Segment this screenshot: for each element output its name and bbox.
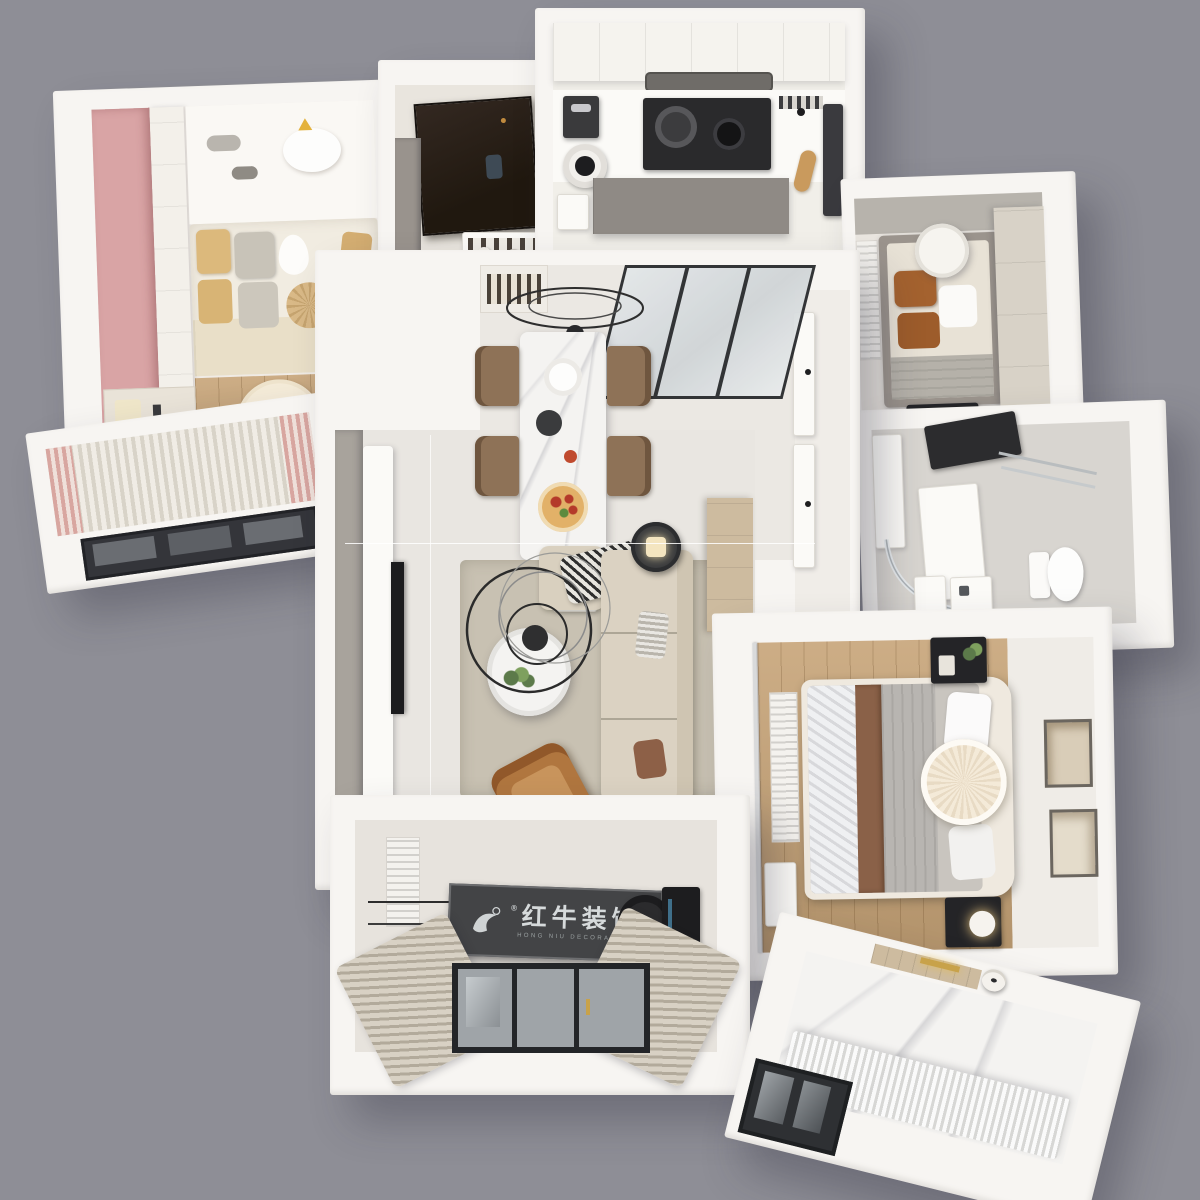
- kitchen-island: [593, 178, 789, 234]
- pot-large: [655, 106, 697, 148]
- mural-cloud-icon: [206, 135, 241, 152]
- door-peephole: [501, 118, 506, 123]
- coffee-machine: [563, 96, 599, 138]
- master-bed: [801, 676, 1015, 900]
- dinner-plate: [544, 358, 582, 396]
- range-hood: [647, 74, 771, 90]
- dining-table: [520, 332, 606, 560]
- apartment-3d-floorplan: ®红牛装饰 HONG NIU DECORATION: [0, 0, 1200, 1200]
- master-radiator: [769, 692, 800, 842]
- logo-bull-icon: [468, 903, 503, 938]
- tall-fridge: [823, 104, 843, 216]
- nightstand-top: [930, 637, 987, 684]
- master-pillow-2: [948, 823, 997, 881]
- wall-art-2: [1049, 809, 1098, 878]
- storage-column: [707, 498, 753, 632]
- washer-door: [959, 586, 969, 596]
- light-strip-h: [345, 543, 815, 544]
- dining-chair-right-1: [607, 346, 651, 406]
- mural-cloud-small-icon: [232, 166, 258, 180]
- pillow-brown-2: [897, 312, 940, 349]
- window-handle-gold: [586, 999, 590, 1015]
- tea-kettle: [536, 410, 562, 436]
- pillow-tan-1: [196, 229, 232, 274]
- kettle: [557, 194, 589, 230]
- sphere-lamp: [969, 911, 995, 937]
- rice-cooker-lid: [575, 156, 595, 176]
- food-plate: [538, 482, 588, 532]
- nightstand-plant: [960, 643, 982, 665]
- small-bedroom-wardrobe: [993, 206, 1050, 420]
- hallway-cabinet-door-2: [793, 444, 815, 568]
- master-side-floor: [1007, 637, 1098, 948]
- coffee-machine-top: [571, 104, 591, 112]
- television: [391, 562, 404, 714]
- master-ceiling-lamp: [920, 738, 1007, 825]
- dining-chair-left-2: [475, 436, 519, 496]
- curtain-pink-edge-left: [46, 446, 84, 537]
- upper-cabinets: [553, 23, 845, 81]
- south-balcony: ®红牛装饰 HONG NIU DECORATION: [330, 795, 750, 1095]
- dining-chair-right-2: [607, 436, 651, 496]
- vase-mouth: [990, 978, 997, 983]
- pot-small: [713, 118, 745, 150]
- toilet: [1029, 543, 1085, 607]
- ceiling-mural: [185, 100, 377, 224]
- brown-pillow: [633, 738, 668, 780]
- door-mullion: [653, 268, 689, 396]
- mural-crown-icon: [298, 118, 312, 130]
- decor-vase: [980, 967, 1009, 994]
- registered-mark: ®: [511, 903, 522, 912]
- window-mullion: [574, 969, 579, 1047]
- window-pane: [792, 1080, 831, 1133]
- sofa-seam: [601, 718, 677, 720]
- balcony-window: [452, 963, 650, 1053]
- ring-chandelier: [451, 538, 621, 708]
- nightstand-bottom: [945, 897, 1002, 948]
- window-glass-reflection: [466, 977, 500, 1027]
- window-pane: [754, 1071, 795, 1125]
- black-side-table: [631, 522, 681, 572]
- red-cup: [564, 450, 577, 463]
- kitchen: [535, 8, 865, 280]
- toilet-seat: [1047, 547, 1085, 602]
- nightstand-book: [939, 655, 955, 675]
- wall-art-1: [1044, 719, 1093, 788]
- door-lock: [485, 154, 503, 179]
- striped-pillow: [635, 611, 670, 660]
- table-lamp: [646, 537, 666, 557]
- sink-faucet: [797, 108, 805, 116]
- door-mullion: [715, 268, 751, 396]
- balcony-radiator: [386, 837, 420, 927]
- white-crinkle-sheet: [807, 685, 863, 894]
- tv-console: [363, 446, 393, 854]
- mural-swan: [282, 127, 342, 173]
- pillow-tan-2: [197, 279, 233, 324]
- pillow-heart: [278, 234, 309, 275]
- window-pane: [168, 525, 232, 555]
- window-mullion: [512, 969, 517, 1047]
- pillow-white: [938, 285, 977, 328]
- pillow-gray-1: [234, 231, 276, 278]
- pillow-gray-2: [238, 281, 280, 328]
- entry-door: [414, 96, 541, 236]
- window-pane: [243, 515, 303, 545]
- dining-chair-left-1: [475, 346, 519, 406]
- cooktop: [643, 98, 771, 170]
- small-bed-blanket: [891, 354, 994, 400]
- master-bedroom: [712, 607, 1118, 982]
- window-pane: [92, 536, 156, 566]
